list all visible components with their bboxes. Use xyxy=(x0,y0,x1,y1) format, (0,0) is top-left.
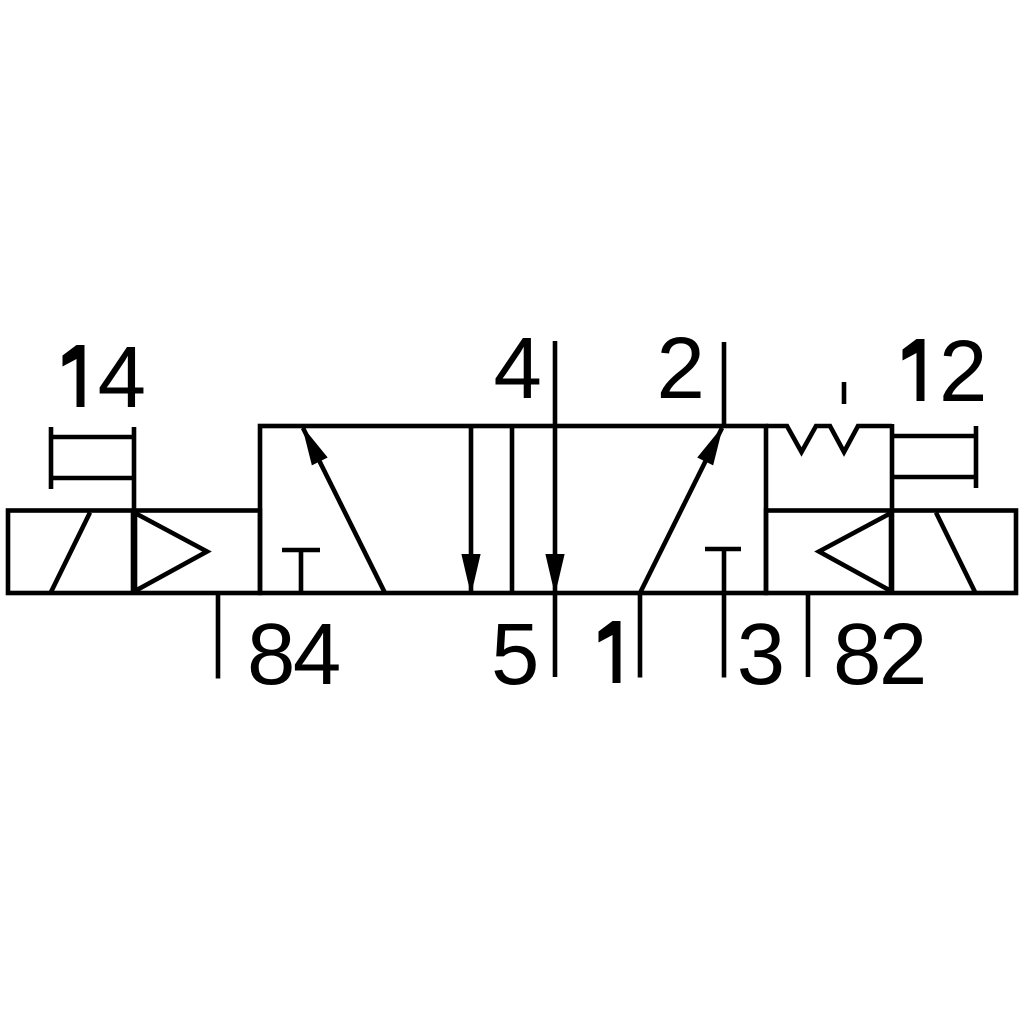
svg-text:84: 84 xyxy=(247,606,339,703)
svg-text:4: 4 xyxy=(494,320,542,417)
svg-text:5: 5 xyxy=(491,606,539,703)
svg-text:82: 82 xyxy=(833,606,925,703)
svg-text:2: 2 xyxy=(657,320,705,417)
svg-text:2: 2 xyxy=(939,323,987,420)
svg-text:4: 4 xyxy=(98,329,146,426)
svg-text:3: 3 xyxy=(737,606,785,703)
